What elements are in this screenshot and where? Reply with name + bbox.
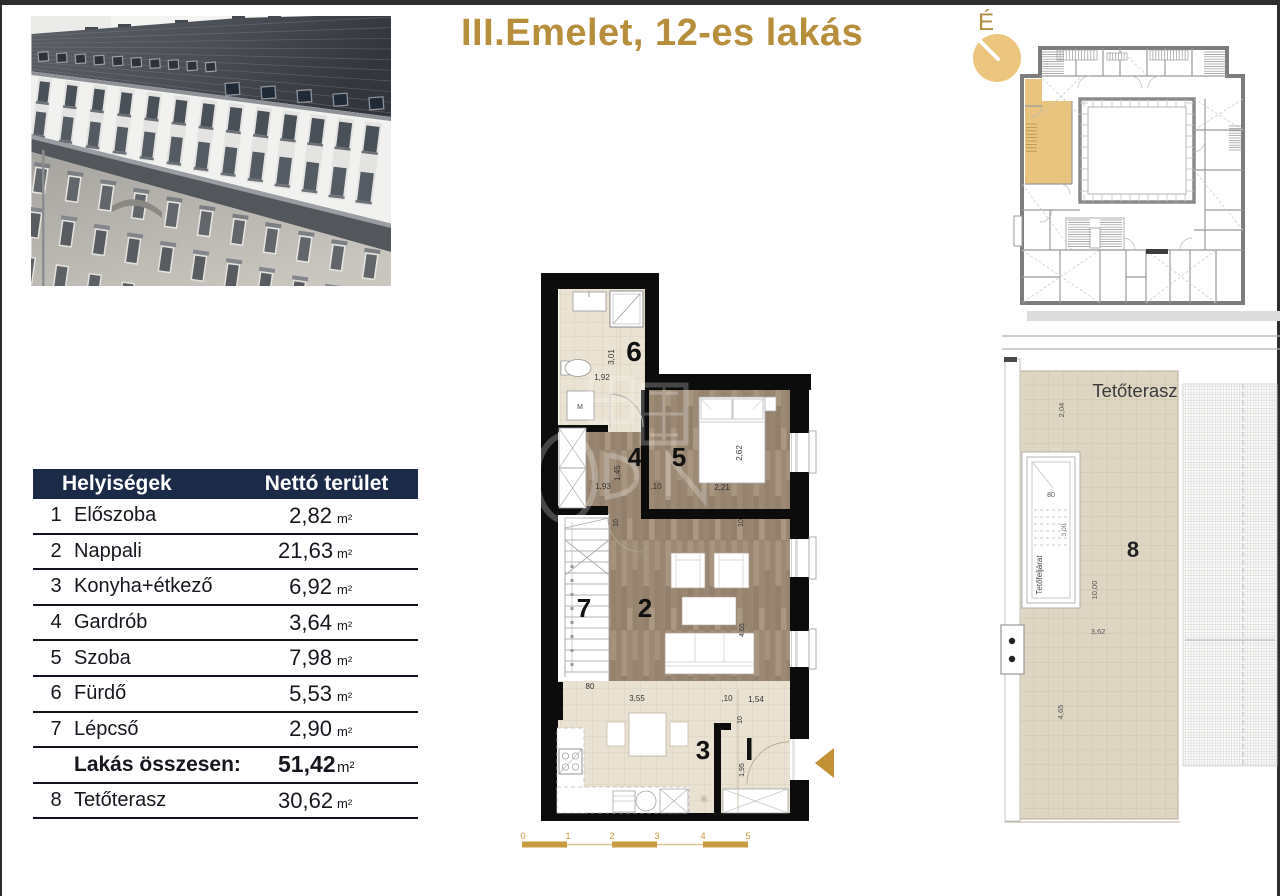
svg-text:4: 4 xyxy=(700,831,705,842)
svg-text:1,93: 1,93 xyxy=(595,482,611,491)
svg-text:2: 2 xyxy=(609,831,614,842)
svg-text:6: 6 xyxy=(626,336,642,367)
svg-text:1: 1 xyxy=(565,831,570,842)
svg-text:10: 10 xyxy=(737,716,744,724)
svg-text:7: 7 xyxy=(577,593,591,623)
svg-text:80: 80 xyxy=(586,682,595,691)
svg-text:10,00: 10,00 xyxy=(1090,581,1099,600)
svg-text:10: 10 xyxy=(738,519,745,527)
svg-text:4,65: 4,65 xyxy=(739,623,746,637)
svg-text:3,00: 3,00 xyxy=(1061,523,1068,536)
svg-text:3: 3 xyxy=(696,735,710,765)
svg-text:1,54: 1,54 xyxy=(748,695,764,704)
svg-text:M: M xyxy=(577,404,583,411)
svg-text:1,45: 1,45 xyxy=(613,465,622,481)
svg-text:Tetőfeljárat: Tetőfeljárat xyxy=(1035,555,1044,595)
svg-text:,10: ,10 xyxy=(650,482,662,491)
svg-text:80: 80 xyxy=(1047,492,1055,499)
svg-text:2,21: 2,21 xyxy=(714,483,730,492)
svg-text:8: 8 xyxy=(1127,537,1139,562)
svg-text:É: É xyxy=(978,9,994,36)
svg-text:2,04: 2,04 xyxy=(1057,403,1066,418)
svg-text:5: 5 xyxy=(672,442,686,472)
svg-text:10: 10 xyxy=(613,519,620,527)
svg-text:3: 3 xyxy=(654,831,659,842)
svg-text:1,95: 1,95 xyxy=(739,763,746,777)
svg-text:3,55: 3,55 xyxy=(629,694,645,703)
svg-text:1,92: 1,92 xyxy=(594,373,610,382)
svg-text:2,62: 2,62 xyxy=(735,445,744,461)
svg-text:4: 4 xyxy=(628,442,643,472)
svg-text:3,01: 3,01 xyxy=(607,349,616,365)
svg-text:5: 5 xyxy=(745,831,750,842)
svg-text:4,65: 4,65 xyxy=(1056,705,1065,720)
svg-text:3,62: 3,62 xyxy=(1091,627,1106,636)
svg-text:,10: ,10 xyxy=(721,694,733,703)
svg-text:Tetőterasz: Tetőterasz xyxy=(1092,380,1177,401)
svg-text:2: 2 xyxy=(638,593,652,623)
svg-text:0: 0 xyxy=(520,831,525,842)
